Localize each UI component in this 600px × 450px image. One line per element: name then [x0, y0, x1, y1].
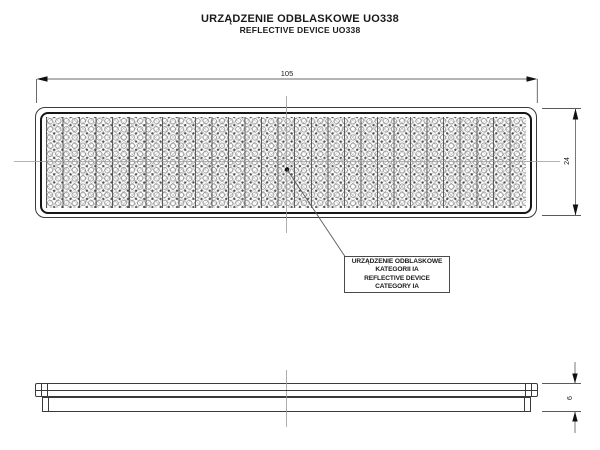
arrowhead-6-bottom-icon [572, 412, 577, 422]
arrowhead-6-top-icon [572, 374, 577, 384]
arrowhead-24-top-icon [573, 109, 579, 120]
callout-line-3: REFLECTIVE DEVICE [345, 275, 449, 283]
arrowhead-105-left-icon [37, 76, 48, 81]
callout-line-1: URZĄDZENIE ODBLASKOWE [345, 258, 449, 266]
arrowhead-24-bottom-icon [573, 205, 579, 216]
dimension-value-width: 105 [272, 69, 302, 78]
callout-line-2: KATEGORII IA [345, 266, 449, 274]
arrowhead-105-right-icon [527, 76, 538, 81]
dimension-value-height: 24 [563, 153, 573, 169]
dimension-value-thickness: 6 [566, 391, 576, 405]
leader-line [287, 170, 345, 257]
callout-box: URZĄDZENIE ODBLASKOWE KATEGORII IA REFLE… [344, 256, 450, 293]
dimension-linework-layer [0, 0, 600, 450]
callout-line-4: CATEGORY IA [345, 283, 449, 291]
technical-drawing-sheet: URZĄDZENIE ODBLASKOWE UO338 REFLECTIVE D… [0, 0, 600, 450]
